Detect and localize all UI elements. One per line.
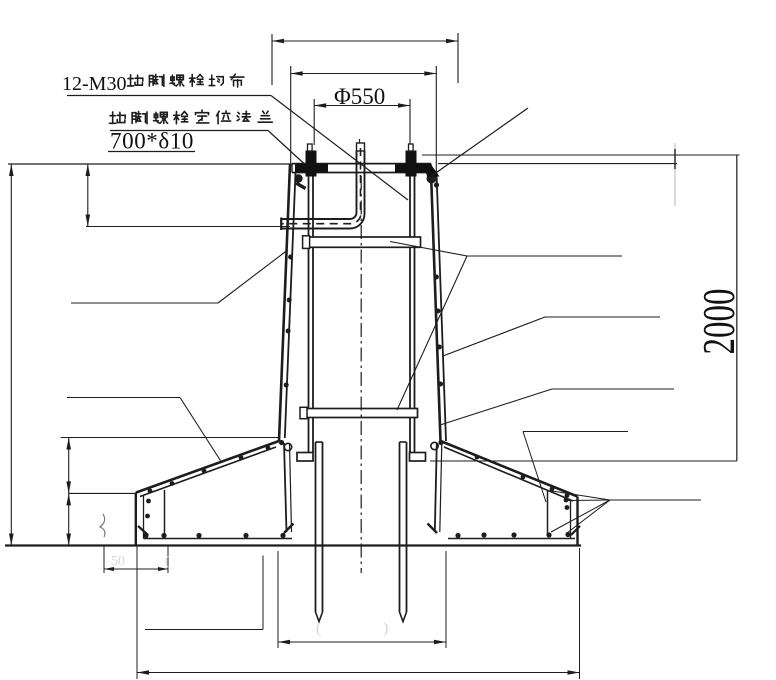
- svg-text:2000: 2000: [693, 289, 744, 355]
- svg-text:700*δ10: 700*δ10: [110, 129, 194, 154]
- svg-text:): ): [383, 620, 388, 637]
- svg-text:(: (: [165, 554, 170, 569]
- svg-text:(: (: [316, 620, 321, 637]
- svg-text:50: 50: [111, 554, 125, 569]
- svg-text:12-M30: 12-M30: [62, 73, 126, 95]
